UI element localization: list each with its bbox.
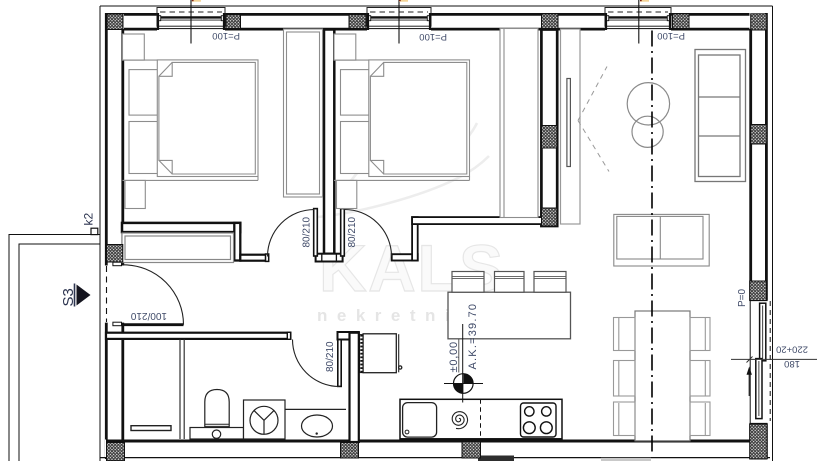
- svg-text:80/210: 80/210: [302, 216, 313, 247]
- svg-text:A.K.=39.70: A.K.=39.70: [467, 303, 479, 370]
- svg-text:180: 180: [784, 358, 800, 369]
- svg-text:100/210: 100/210: [130, 310, 167, 321]
- svg-text:220+20: 220+20: [776, 344, 808, 355]
- svg-text:k2: k2: [82, 213, 96, 226]
- svg-text:P=0: P=0: [737, 288, 748, 307]
- svg-text:P=100: P=100: [419, 31, 447, 42]
- svg-text:80/210: 80/210: [347, 216, 358, 247]
- svg-text:±0,00: ±0,00: [448, 341, 460, 372]
- svg-text:P=100: P=100: [212, 30, 240, 41]
- svg-text:80/210: 80/210: [325, 341, 336, 372]
- svg-text:P=100: P=100: [657, 30, 685, 41]
